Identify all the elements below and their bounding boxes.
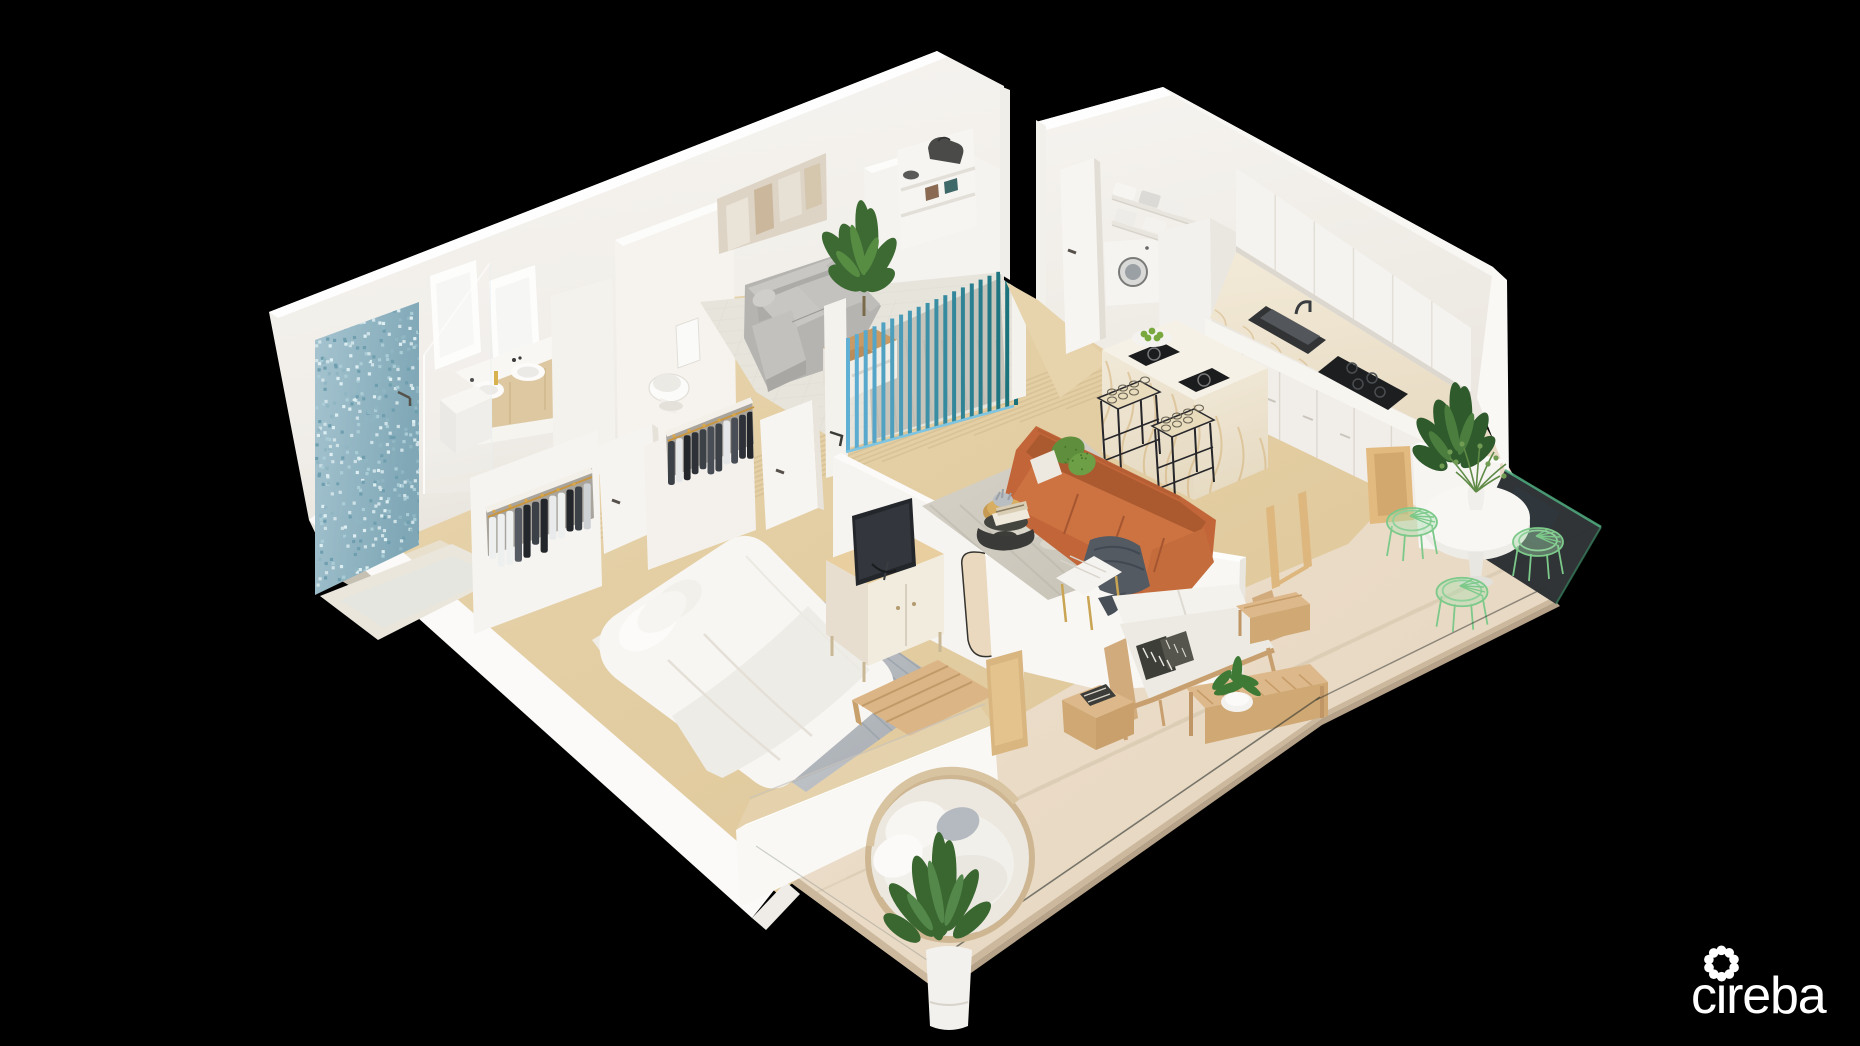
- svg-text:cireba: cireba: [1691, 967, 1827, 1025]
